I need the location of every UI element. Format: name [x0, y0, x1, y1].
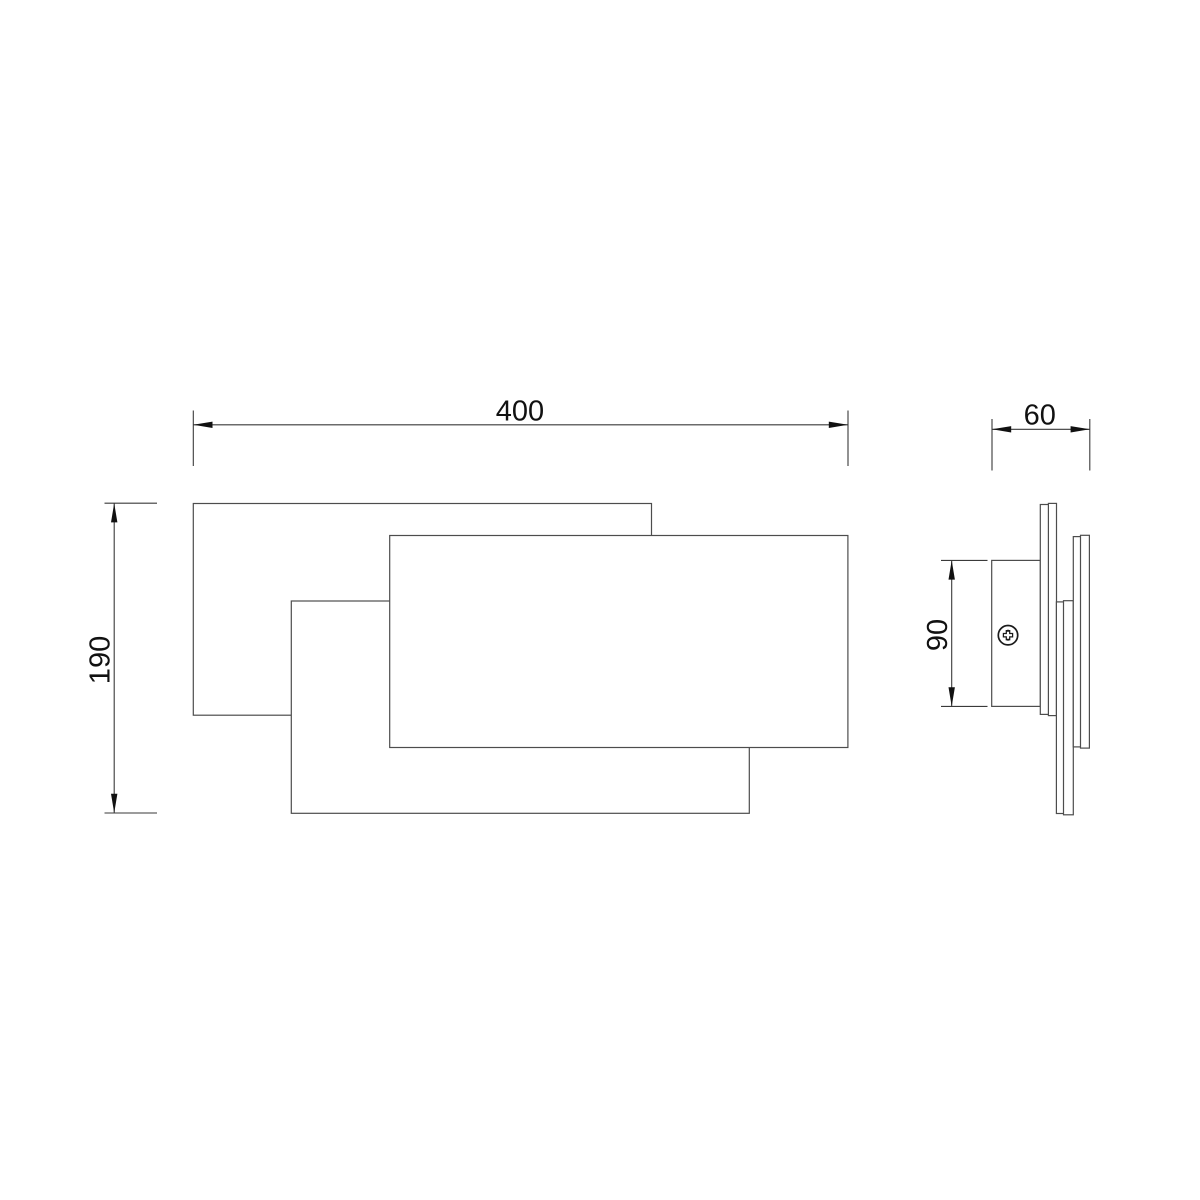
svg-text:190: 190 [85, 636, 117, 684]
svg-text:60: 60 [1024, 399, 1056, 431]
svg-text:400: 400 [496, 396, 544, 428]
svg-text:90: 90 [922, 619, 954, 651]
